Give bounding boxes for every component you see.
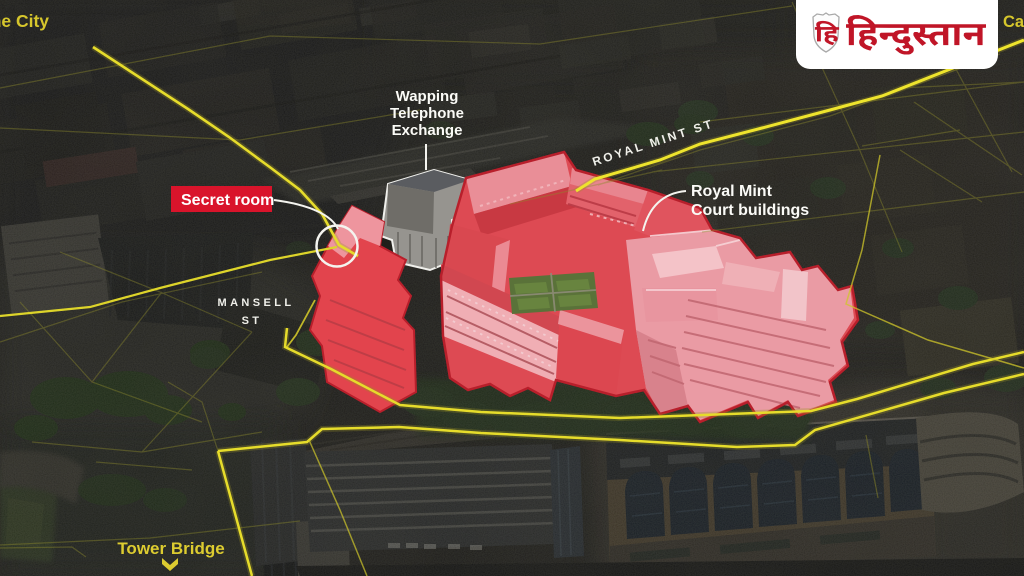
svg-text:Wapping: Wapping [396, 88, 459, 105]
svg-text:Exchange: Exchange [392, 122, 463, 139]
svg-text:Tower Bridge: Tower Bridge [117, 539, 224, 558]
svg-text:Court buildings: Court buildings [691, 202, 809, 219]
svg-text:Telephone: Telephone [390, 105, 464, 122]
svg-text:Secret room: Secret room [181, 192, 274, 209]
svg-text:ST: ST [242, 315, 263, 327]
svg-text:Cab: Cab [1003, 13, 1024, 31]
svg-text:MANSELL: MANSELL [218, 297, 295, 309]
svg-text:Royal Mint: Royal Mint [691, 183, 773, 200]
svg-text:The City: The City [0, 11, 49, 31]
